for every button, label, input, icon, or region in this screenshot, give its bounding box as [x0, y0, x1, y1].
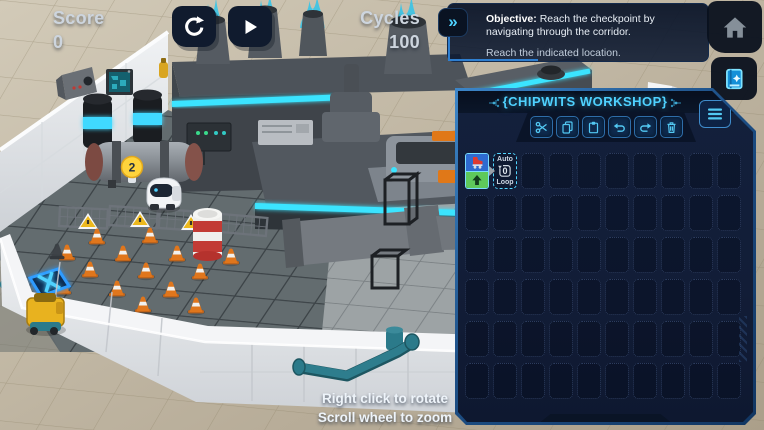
chip-slot-empty[interactable]	[717, 279, 741, 315]
chip-slot-empty[interactable]	[577, 363, 601, 399]
chip-slot-empty[interactable]	[493, 279, 517, 315]
copy-button[interactable]	[556, 116, 579, 138]
hint-rotate: Right click to rotate	[245, 389, 525, 408]
chip-slot-empty[interactable]	[605, 153, 629, 189]
camera-hints: Right click to rotate Scroll wheel to zo…	[245, 389, 525, 427]
move-chip[interactable]	[465, 153, 489, 189]
chip-move-half	[466, 154, 488, 171]
chip-slot-empty[interactable]	[493, 237, 517, 273]
chip-slot-empty[interactable]	[717, 153, 741, 189]
chip-slot-empty[interactable]	[689, 153, 713, 189]
chip-slot-empty[interactable]	[717, 195, 741, 231]
chip-slot-empty[interactable]	[465, 279, 489, 315]
chip-slot-empty[interactable]	[549, 237, 573, 273]
chip-slot-empty[interactable]	[465, 237, 489, 273]
redo-arrow-icon	[639, 121, 652, 134]
workshop-panel: {CHIPWITS WORKSHOP}	[455, 88, 756, 425]
trash-can-icon	[665, 121, 678, 134]
chip-flow-connector-icon	[489, 166, 495, 176]
hatch-decoration	[739, 316, 747, 362]
chip-slot-empty[interactable]	[661, 195, 685, 231]
chip-slot-empty[interactable]	[549, 279, 573, 315]
score-label: Score	[53, 8, 105, 29]
chip-slot-empty[interactable]	[465, 321, 489, 357]
chip-slot-empty[interactable]	[605, 195, 629, 231]
chip-slot-empty[interactable]	[493, 321, 517, 357]
chip-slot-empty[interactable]	[549, 153, 573, 189]
book-star-icon	[722, 67, 746, 91]
chip-slot-empty[interactable]	[661, 237, 685, 273]
red-skate-icon	[470, 155, 485, 169]
chip-slot-empty[interactable]	[521, 279, 545, 315]
workshop-title: {CHIPWITS WORKSHOP}	[503, 94, 668, 109]
chip-slot-move-chip[interactable]	[465, 153, 489, 189]
chip-slot-empty[interactable]	[689, 363, 713, 399]
chip-slot-empty[interactable]	[465, 195, 489, 231]
chip-slot-empty[interactable]	[689, 321, 713, 357]
cycles-label: Cycles	[320, 8, 420, 29]
home-icon	[720, 14, 750, 41]
circuit-decoration-right	[670, 98, 682, 108]
chip-slot-empty[interactable]	[605, 279, 629, 315]
loop-counter-value: 0	[498, 164, 512, 178]
workshop-body: {CHIPWITS WORKSHOP}	[458, 91, 753, 422]
play-icon	[239, 16, 261, 38]
objective-panel: » Objective: Reach the checkpoint by nav…	[447, 3, 709, 62]
circuit-decoration-left	[488, 98, 500, 108]
hero-robot	[147, 178, 181, 213]
up-arrow-icon	[471, 174, 483, 186]
chip-slot-empty[interactable]	[717, 363, 741, 399]
workshop-title-row: {CHIPWITS WORKSHOP}	[458, 94, 712, 109]
hint-zoom: Scroll wheel to zoom	[245, 408, 525, 427]
scissors-icon	[535, 121, 548, 134]
chip-grid: Auto 0 Loop	[465, 153, 741, 399]
cut-button[interactable]	[530, 116, 553, 138]
document-copy-icon	[561, 121, 574, 134]
chip-slot-empty[interactable]	[633, 195, 657, 231]
reset-icon	[182, 15, 206, 39]
chip-slot-empty[interactable]	[521, 321, 545, 357]
home-button[interactable]	[707, 1, 762, 53]
workshop-toolbar	[516, 112, 696, 142]
hamburger-menu-icon	[707, 108, 723, 120]
chip-slot-empty[interactable]	[577, 195, 601, 231]
chip-slot-empty[interactable]	[633, 279, 657, 315]
redo-button[interactable]	[634, 116, 657, 138]
chip-slot-empty[interactable]	[521, 153, 545, 189]
chip-slot-empty[interactable]	[577, 321, 601, 357]
chip-slot-empty[interactable]	[493, 195, 517, 231]
chip-slot-empty[interactable]	[549, 195, 573, 231]
chip-slot-empty[interactable]	[689, 195, 713, 231]
chip-slot-empty[interactable]	[661, 153, 685, 189]
paste-button[interactable]	[582, 116, 605, 138]
chip-slot-empty[interactable]	[521, 195, 545, 231]
auto-loop-bottom-label: Loop	[496, 179, 513, 186]
chip-slot-empty[interactable]	[577, 237, 601, 273]
chip-slot-empty[interactable]	[605, 321, 629, 357]
chip-slot-empty[interactable]	[549, 363, 573, 399]
chip-slot-empty[interactable]	[633, 363, 657, 399]
auto-loop-top-label: Auto	[497, 156, 513, 163]
cycles-value: 100	[320, 32, 420, 53]
chip-slot-empty[interactable]	[661, 321, 685, 357]
chip-slot-empty[interactable]	[521, 237, 545, 273]
objective-subtext: Reach the indicated location.	[486, 47, 700, 59]
chip-slot-empty[interactable]	[549, 321, 573, 357]
chip-slot-empty[interactable]	[633, 321, 657, 357]
chip-slot-empty[interactable]	[633, 153, 657, 189]
chip-slot-empty[interactable]	[633, 237, 657, 273]
undo-button[interactable]	[608, 116, 631, 138]
objective-collapse-button[interactable]: »	[438, 8, 468, 37]
panel-bottom-notch	[541, 414, 671, 422]
chip-direction-half	[466, 171, 488, 189]
thought-count: 2	[129, 161, 136, 175]
objective-title: Objective:	[486, 13, 537, 25]
wall-monitor	[106, 69, 133, 95]
chip-slot-empty[interactable]	[689, 279, 713, 315]
striped-barrel	[193, 208, 222, 261]
undo-arrow-icon	[613, 121, 626, 134]
chip-slot-empty[interactable]	[577, 153, 601, 189]
chip-slot-empty[interactable]	[661, 279, 685, 315]
clipboard-icon	[587, 121, 600, 134]
chip-slot-auto-loop[interactable]: Auto 0 Loop	[493, 153, 517, 189]
chip-slot-empty[interactable]	[689, 237, 713, 273]
yellow-robot	[26, 293, 66, 336]
game-screen: 2 Score 0 Cycles 100 » Objective: Reach	[0, 0, 764, 430]
chip-slot-empty[interactable]	[577, 279, 601, 315]
chip-slot-empty[interactable]	[605, 363, 629, 399]
chip-slot-empty[interactable]	[661, 363, 685, 399]
chip-slot-empty[interactable]	[717, 321, 741, 357]
chip-slot-empty[interactable]	[717, 237, 741, 273]
objective-text: Objective: Reach the checkpoint by navig…	[486, 13, 700, 39]
delete-button[interactable]	[660, 116, 683, 138]
chip-slot-empty[interactable]	[605, 237, 629, 273]
loop-counter-icon: 0	[498, 164, 512, 178]
score-value: 0	[53, 32, 63, 53]
reset-button[interactable]	[172, 6, 216, 47]
play-button[interactable]	[228, 6, 272, 47]
